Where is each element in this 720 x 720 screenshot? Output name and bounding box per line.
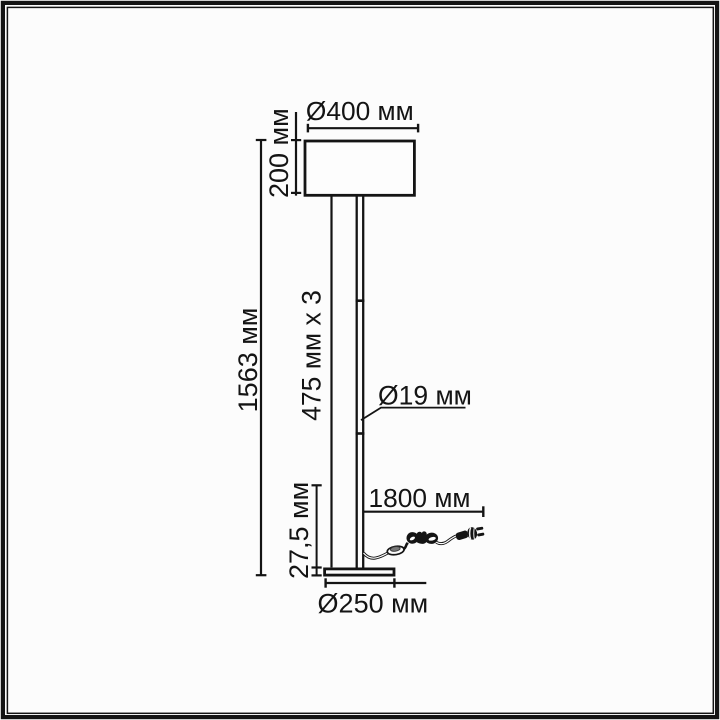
svg-text:Ø19 мм: Ø19 мм: [378, 381, 472, 411]
svg-text:1563 мм: 1563 мм: [233, 308, 263, 413]
svg-text:Ø250 мм: Ø250 мм: [318, 588, 429, 618]
svg-text:200 мм: 200 мм: [264, 108, 294, 198]
svg-text:Ø400 мм: Ø400 мм: [306, 96, 414, 126]
svg-text:475 мм х 3: 475 мм х 3: [297, 290, 327, 421]
svg-text:27,5 мм: 27,5 мм: [284, 482, 314, 579]
svg-text:1800 мм: 1800 мм: [369, 483, 471, 513]
